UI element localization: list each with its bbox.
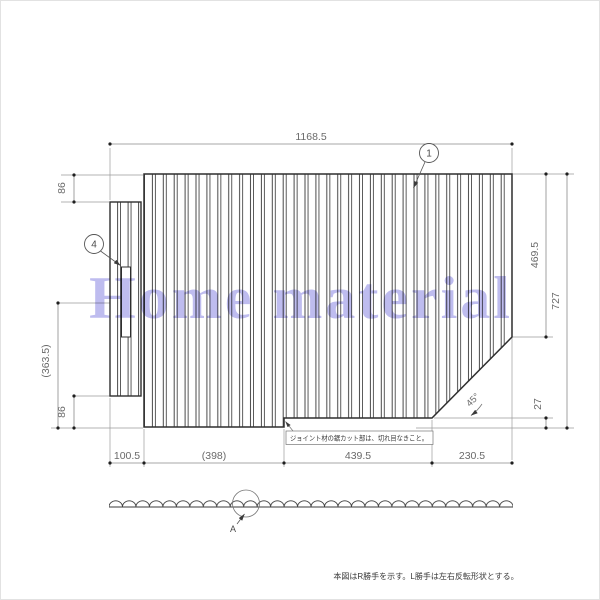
drawing-svg: 1168.5 100.5 (398) 439.5 230.5 86 (363.5… (1, 1, 600, 600)
dim-bottom-4: 230.5 (459, 450, 485, 462)
dim-bottom-1: 100.5 (114, 450, 140, 462)
dim-left-bottom: 86 (56, 406, 68, 418)
dim-left-mid: (363.5) (40, 344, 52, 377)
dim-right-upper: 469.5 (529, 242, 541, 268)
dim-right-lower: 27 (532, 398, 544, 410)
side-view: A (109, 490, 513, 534)
dim-bottom-2: (398) (202, 450, 227, 462)
joint-strip-part4 (122, 267, 131, 337)
bath-lid-technical-drawing: 1168.5 100.5 (398) 439.5 230.5 86 (363.5… (0, 0, 600, 600)
angle-label: 45° (464, 391, 482, 409)
note-box: ジョイント材の鋸カット部は、切れ目なきこと。 (286, 422, 434, 445)
balloon-part1-label: 1 (426, 149, 432, 160)
dim-right-total: 727 (550, 292, 562, 310)
main-lid-panel (144, 174, 512, 427)
footer-note: 本図はR勝手を示す。L勝手は左右反転形状とする。 (333, 571, 518, 581)
dim-top-width: 1168.5 (295, 131, 326, 143)
detail-label: A (230, 524, 236, 534)
side-view-scallops (109, 494, 513, 507)
dim-bottom-3: 439.5 (345, 450, 371, 462)
note-text: ジョイント材の鋸カット部は、切れ目なきこと。 (290, 434, 428, 443)
balloon-part4-label: 4 (91, 240, 97, 251)
dim-left-top: 86 (56, 182, 68, 194)
